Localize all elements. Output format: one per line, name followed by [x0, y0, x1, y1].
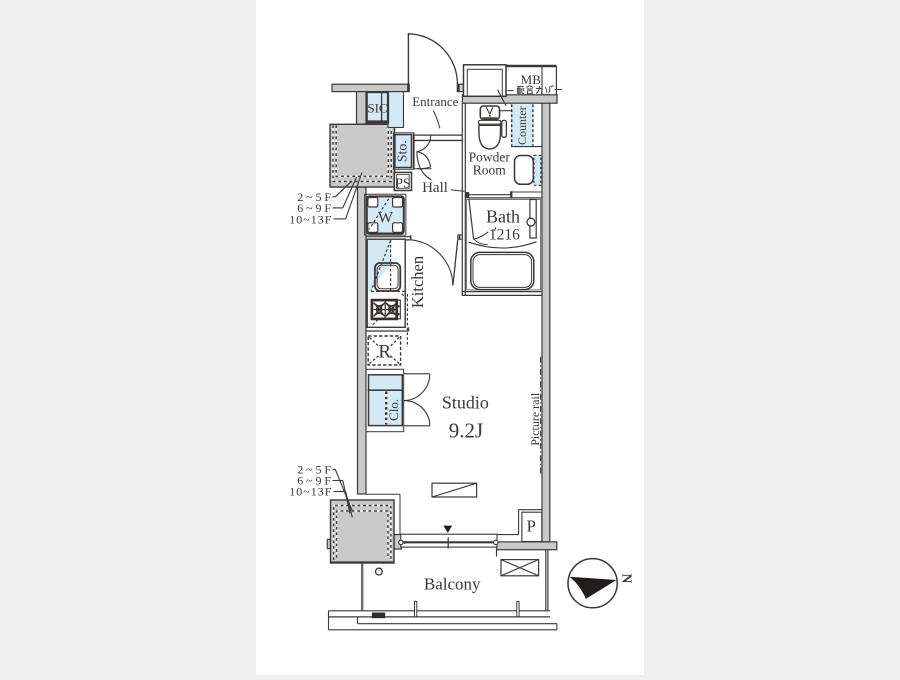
svg-text:P: P [527, 516, 536, 535]
svg-text:Counter: Counter [515, 106, 529, 145]
svg-text:SIC: SIC [367, 100, 387, 115]
svg-text:PS: PS [395, 177, 411, 192]
svg-text:Hall: Hall [422, 180, 448, 196]
svg-text:10~13F: 10~13F [289, 485, 332, 499]
svg-text:Studio: Studio [442, 392, 489, 412]
svg-text:Room: Room [473, 162, 507, 177]
svg-text:10~13F: 10~13F [289, 212, 332, 226]
svg-text:Sto.: Sto. [396, 140, 411, 162]
svg-text:Clo.: Clo. [386, 399, 401, 421]
svg-text:W: W [378, 209, 394, 226]
svg-text:Entrance: Entrance [412, 94, 458, 109]
svg-text:9.2J: 9.2J [449, 418, 483, 442]
svg-text:Balcony: Balcony [424, 575, 481, 594]
svg-text:R: R [378, 341, 391, 362]
svg-text:MB: MB [521, 72, 542, 87]
svg-text:1216: 1216 [489, 226, 520, 243]
svg-text:N: N [619, 574, 634, 584]
svg-text:Kitchen: Kitchen [408, 256, 427, 308]
svg-text:Bath: Bath [486, 207, 520, 227]
svg-text:Picture rail: Picture rail [528, 392, 542, 446]
